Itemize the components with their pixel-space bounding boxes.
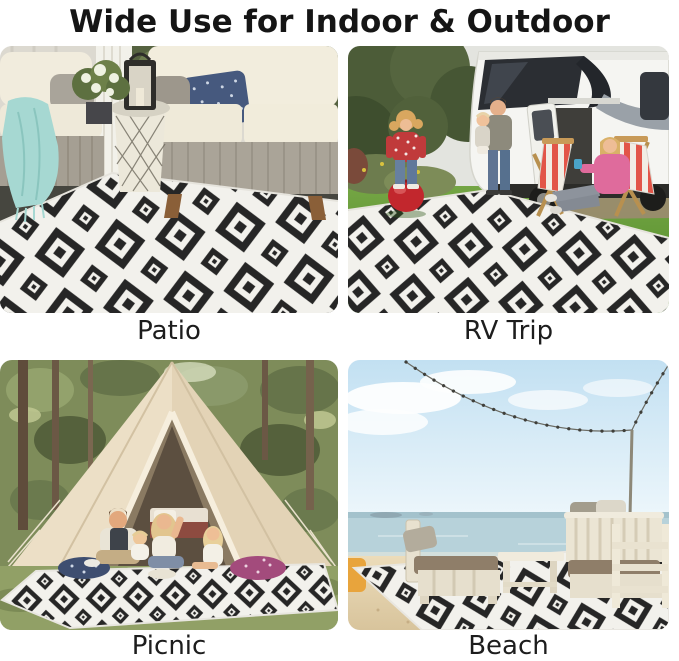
photo-beach [348, 360, 669, 630]
patio-scene [0, 46, 338, 313]
side-window [640, 72, 669, 120]
awning-bar [548, 98, 620, 104]
face [490, 100, 506, 116]
jeans [395, 160, 405, 186]
product-image: Wide Use for Indoor & Outdoor [0, 0, 679, 661]
little-girl [131, 531, 149, 560]
caption-rv-trip: RV Trip [348, 316, 669, 346]
jeans [488, 150, 498, 192]
page-title: Wide Use for Indoor & Outdoor [0, 0, 679, 43]
picnic-scene [0, 360, 338, 630]
face [603, 139, 617, 153]
lantern [124, 54, 156, 110]
caption-picnic: Picnic [0, 631, 338, 661]
plate [148, 569, 176, 579]
right-sofa [148, 46, 338, 194]
photo-picnic [0, 360, 338, 630]
photo-rv-trip [348, 46, 669, 313]
caption-beach: Beach [348, 631, 669, 661]
beach-scene [348, 360, 669, 630]
face [400, 119, 412, 131]
toddler-body [475, 126, 490, 148]
caption-patio: Patio [0, 316, 338, 346]
photo-patio [0, 46, 338, 313]
pink-pillow [230, 556, 286, 580]
cup [574, 159, 582, 169]
rv-scene [348, 46, 669, 313]
plant-pot [86, 102, 112, 124]
pink-hoodie [594, 154, 630, 194]
